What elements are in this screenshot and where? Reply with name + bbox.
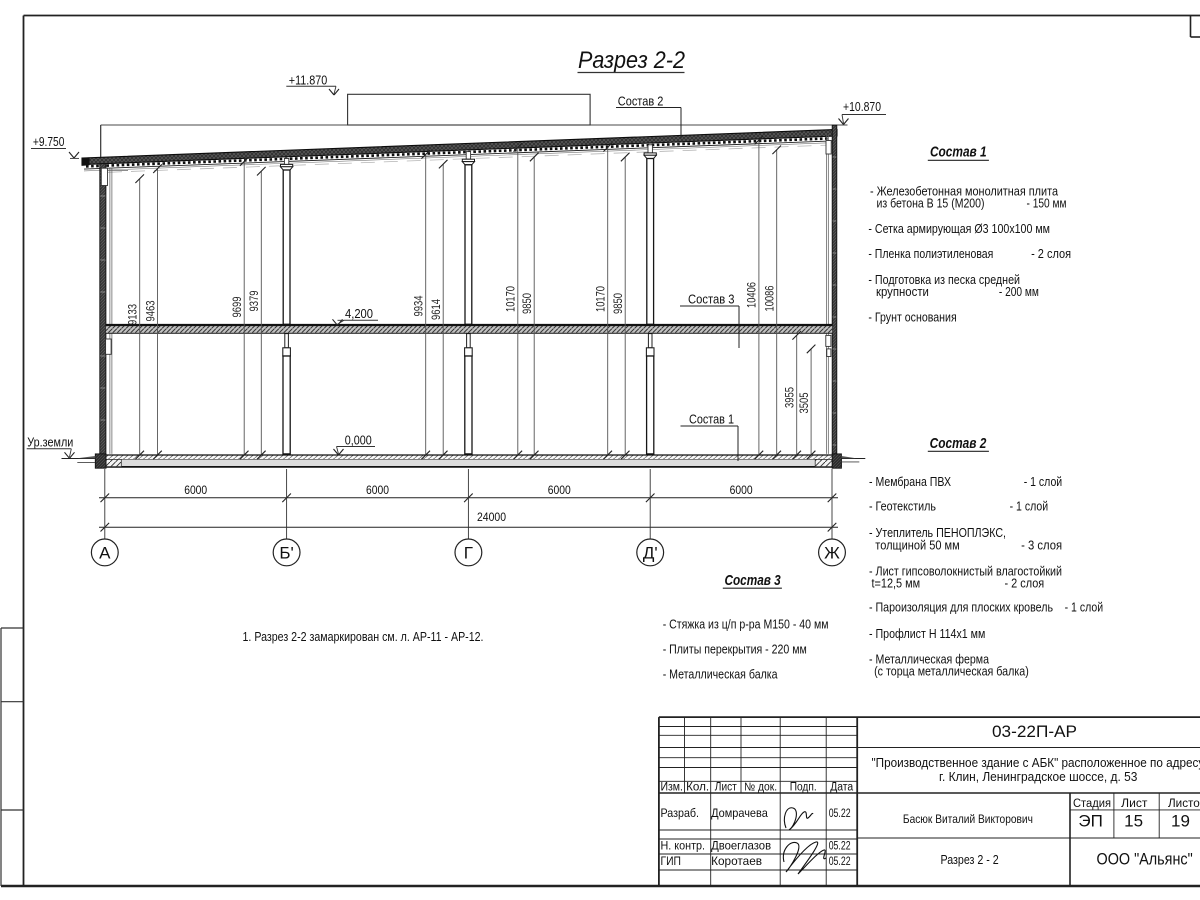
svg-text:Г: Г: [464, 544, 473, 563]
svg-text:15: 15: [1124, 812, 1143, 831]
svg-text:Лист: Лист: [715, 782, 738, 794]
svg-text:- 2 слоя: - 2 слоя: [1031, 246, 1071, 261]
svg-text:9133: 9133: [126, 304, 140, 325]
svg-text:- 200 мм: - 200 мм: [999, 284, 1039, 299]
svg-text:крупности: крупности: [876, 284, 929, 299]
svg-text:Ур.земли: Ур.земли: [27, 436, 73, 450]
svg-text:Д': Д': [643, 544, 658, 563]
svg-text:Листов: Листов: [1168, 798, 1200, 810]
svg-text:ГИП: ГИП: [661, 854, 682, 868]
svg-text:0,000: 0,000: [345, 433, 372, 448]
svg-text:+10.870: +10.870: [843, 99, 881, 114]
svg-text:+9.750: +9.750: [33, 134, 65, 149]
svg-text:(с торца металлическая балка): (с торца металлическая балка): [874, 664, 1029, 679]
svg-text:"Производственное здание с АБК: "Производственное здание с АБК" располож…: [872, 755, 1200, 770]
svg-text:из бетона В 15 (М200): из бетона В 15 (М200): [877, 195, 985, 210]
svg-text:6000: 6000: [730, 483, 753, 497]
svg-text:10406: 10406: [745, 282, 759, 308]
svg-text:- Пароизоляция для плоских кро: - Пароизоляция для плоских кровель: [869, 600, 1053, 615]
svg-text:10170: 10170: [504, 286, 518, 312]
svg-text:Стадия: Стадия: [1073, 798, 1111, 810]
svg-text:г. Клин, Ленинградское шоссе,: г. Клин, Ленинградское шоссе, д. 53: [939, 769, 1137, 784]
svg-text:- Геотекстиль: - Геотекстиль: [869, 499, 936, 514]
svg-text:- 2 слоя: - 2 слоя: [1005, 576, 1045, 591]
svg-text:4,200: 4,200: [345, 306, 373, 321]
svg-text:- Металлическая балка: - Металлическая балка: [663, 667, 779, 682]
svg-text:05.22: 05.22: [829, 806, 851, 820]
svg-text:Изм.: Изм.: [660, 782, 683, 794]
svg-text:Дата: Дата: [830, 782, 854, 794]
svg-text:- Профлист Н 114х1 мм: - Профлист Н 114х1 мм: [869, 626, 985, 641]
svg-text:9934: 9934: [412, 295, 426, 316]
svg-text:- 3 слоя: - 3 слоя: [1021, 538, 1062, 553]
svg-text:- Стяжка из ц/п р-ра М150 - 40: - Стяжка из ц/п р-ра М150 - 40 мм: [663, 617, 829, 632]
svg-text:Разраб.: Разраб.: [661, 806, 700, 820]
svg-text:№ док.: № док.: [744, 782, 777, 794]
svg-text:- Грунт основания: - Грунт основания: [868, 309, 956, 324]
svg-text:Лист: Лист: [1121, 798, 1148, 810]
svg-text:05.22: 05.22: [829, 839, 851, 853]
svg-text:Домрачева: Домрачева: [711, 806, 768, 820]
svg-text:03-22П-АР: 03-22П-АР: [992, 723, 1077, 741]
svg-text:- 1 слой: - 1 слой: [1010, 499, 1049, 514]
svg-text:Басюк Виталий Викторович: Басюк Виталий Викторович: [903, 812, 1033, 826]
svg-text:6000: 6000: [548, 483, 571, 497]
svg-text:Б': Б': [279, 544, 293, 563]
svg-text:- Сетка армирующая Ø3 100х100: - Сетка армирующая Ø3 100х100 мм: [868, 221, 1050, 236]
svg-text:- 1 слой: - 1 слой: [1024, 474, 1062, 489]
svg-text:Подп.: Подп.: [790, 782, 817, 794]
svg-text:Разрез 2-2: Разрез 2-2: [578, 47, 685, 74]
svg-text:Коротаев: Коротаев: [711, 854, 762, 868]
svg-text:Разрез 2 - 2: Разрез 2 - 2: [940, 852, 998, 867]
svg-text:Кол.: Кол.: [686, 782, 709, 794]
svg-text:Состав 1: Состав 1: [689, 412, 734, 427]
svg-text:3505: 3505: [797, 392, 811, 413]
svg-text:9850: 9850: [611, 293, 625, 314]
svg-text:Состав 1: Состав 1: [930, 144, 987, 161]
svg-text:Состав 2: Состав 2: [618, 94, 664, 109]
svg-text:- Пленка полиэтиленовая: - Пленка полиэтиленовая: [868, 246, 993, 261]
svg-text:Ж: Ж: [824, 544, 840, 563]
svg-text:9379: 9379: [247, 290, 261, 311]
svg-text:- 150 мм: - 150 мм: [1027, 195, 1067, 210]
svg-text:9699: 9699: [230, 296, 244, 317]
svg-text:6000: 6000: [366, 483, 389, 497]
svg-text:10170: 10170: [594, 286, 608, 312]
svg-text:- 1 слой: - 1 слой: [1065, 600, 1104, 615]
svg-text:19: 19: [1171, 812, 1190, 831]
svg-text:- Плиты перекрытия - 220 мм: - Плиты перекрытия - 220 мм: [663, 642, 807, 657]
svg-text:24000: 24000: [477, 510, 506, 524]
svg-text:Состав 3: Состав 3: [688, 292, 735, 307]
svg-text:t=12,5 мм: t=12,5 мм: [872, 576, 921, 591]
svg-text:Двоеглазов: Двоеглазов: [711, 839, 771, 853]
svg-text:05.22: 05.22: [829, 854, 851, 868]
svg-text:- Мембрана ПВХ: - Мембрана ПВХ: [869, 474, 951, 489]
svg-text:9614: 9614: [429, 299, 443, 320]
svg-text:ООО "Альянс": ООО "Альянс": [1097, 851, 1193, 869]
svg-text:+11.870: +11.870: [289, 73, 328, 88]
svg-text:6000: 6000: [184, 483, 207, 497]
svg-text:А: А: [99, 544, 111, 563]
svg-text:Состав 3: Состав 3: [724, 572, 781, 589]
svg-text:Состав 2: Состав 2: [930, 435, 987, 452]
svg-text:ЭП: ЭП: [1078, 812, 1102, 831]
svg-text:9850: 9850: [520, 293, 534, 314]
svg-text:3955: 3955: [783, 387, 797, 408]
svg-text:9463: 9463: [143, 300, 157, 321]
svg-text:10086: 10086: [763, 285, 777, 311]
svg-text:1. Разрез 2-2 замаркирован см.: 1. Разрез 2-2 замаркирован см. л. АР-11 …: [243, 630, 484, 644]
svg-text:толщиной 50 мм: толщиной 50 мм: [875, 538, 959, 553]
svg-text:Н. контр.: Н. контр.: [661, 839, 706, 853]
